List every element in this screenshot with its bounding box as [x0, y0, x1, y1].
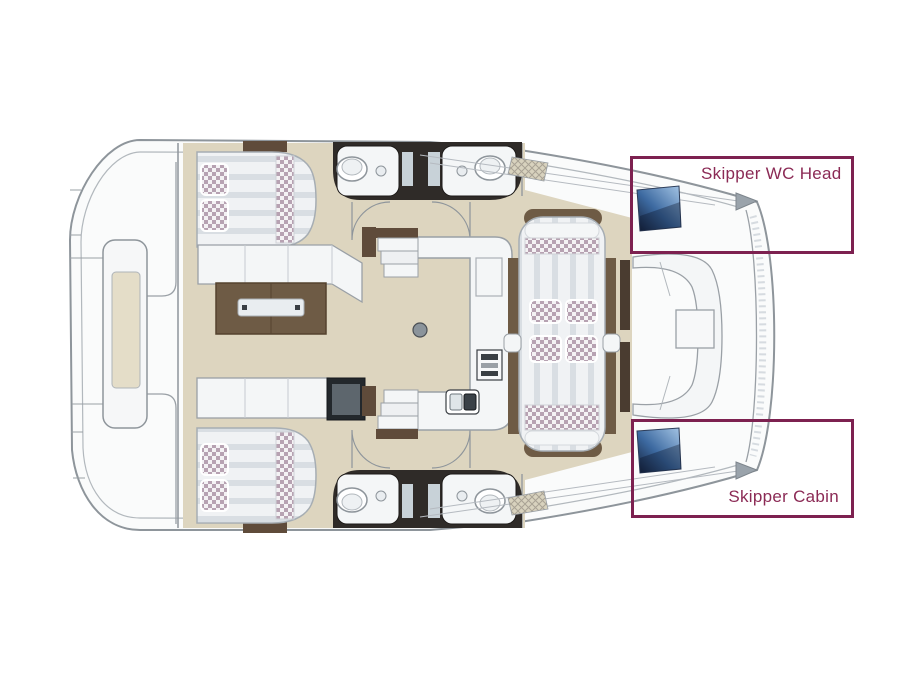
port-head [333, 142, 522, 200]
port-cabin-bed [197, 141, 316, 247]
pillow [201, 200, 228, 231]
pillow [566, 300, 597, 323]
pillow [201, 444, 228, 475]
shower-window [402, 484, 413, 518]
toilet-icon [475, 489, 505, 513]
pillow [566, 336, 597, 362]
headboard [243, 141, 287, 152]
boat-floor-plan: Skipper WC Head Skipper Cabin [0, 0, 900, 675]
shower-window [402, 152, 413, 186]
pillow [201, 480, 228, 511]
stove-icon [477, 350, 502, 380]
annotation-box-cabin: Skipper Cabin [631, 419, 854, 518]
toilet-icon [475, 156, 505, 180]
shower-window [428, 484, 440, 518]
sink-unit-icon [446, 390, 479, 414]
annotation-label-cabin: Skipper Cabin [728, 487, 839, 507]
saloon-sofa-bottom [197, 378, 329, 418]
sink-icon [376, 166, 386, 176]
saloon-table [216, 283, 326, 334]
pillow [530, 336, 561, 362]
floor-plan-drawing [0, 0, 900, 675]
stern-platform [103, 240, 147, 428]
pillow [201, 164, 228, 195]
pillow [530, 300, 561, 323]
starboard-cabin-bed [197, 428, 316, 533]
annotation-box-wc-head: Skipper WC Head [630, 156, 854, 254]
toilet-icon [337, 488, 367, 512]
cockpit-table [676, 310, 714, 348]
sink-icon [457, 491, 467, 501]
annotation-label-wc-head: Skipper WC Head [701, 164, 842, 184]
sink-icon [376, 491, 386, 501]
toilet-icon [337, 157, 367, 181]
foredeck-sunbed [504, 209, 620, 457]
table-mount [413, 323, 427, 337]
cooler-box [327, 378, 365, 420]
starboard-head [333, 470, 522, 528]
